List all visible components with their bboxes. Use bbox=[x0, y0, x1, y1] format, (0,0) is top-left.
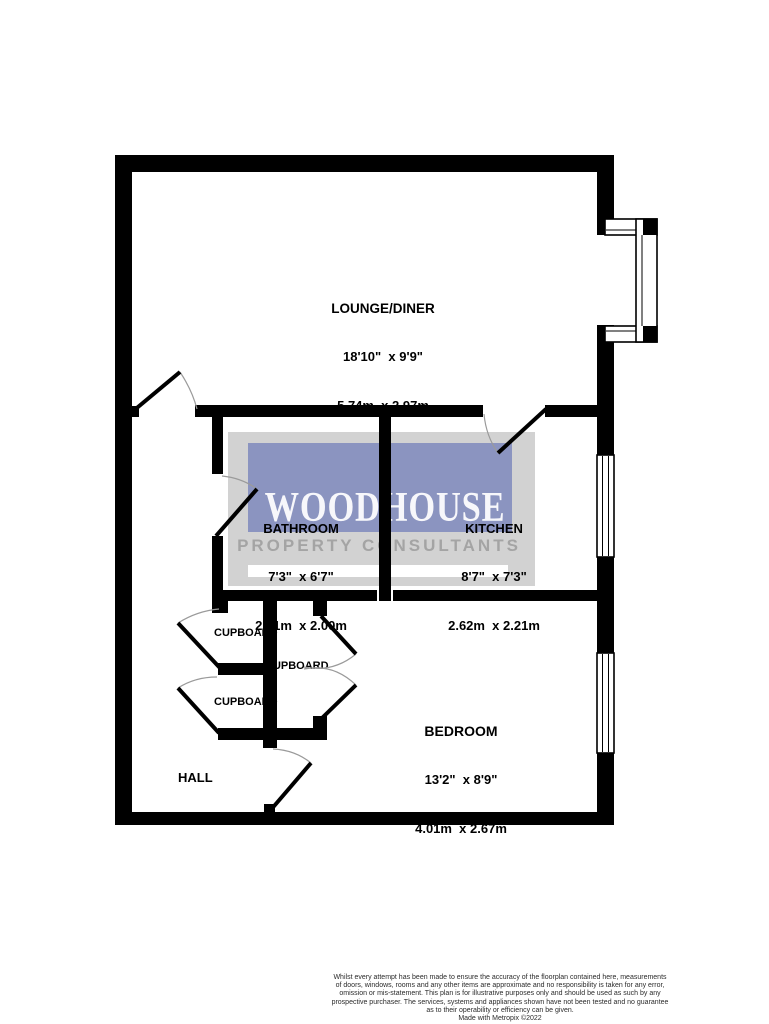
lounge-dim-imperial: 18'10" x 9'9" bbox=[331, 351, 435, 364]
bedroom-label: BEDROOM 13'2" x 8'9" 4.01m x 2.67m bbox=[415, 689, 507, 871]
disclaimer-line: prospective purchaser. The services, sys… bbox=[307, 999, 693, 1007]
cupboard-middle-label: CUPBOARD bbox=[265, 660, 329, 672]
lounge-label: LOUNGE/DINER 18'10" x 9'9" 5.74m x 2.97m bbox=[331, 266, 435, 448]
disclaimer: Whilst every attempt has been made to en… bbox=[307, 974, 693, 1023]
bedroom-dim-imperial: 13'2" x 8'9" bbox=[415, 774, 507, 787]
hall-label: HALL bbox=[178, 770, 213, 785]
bedroom-name: BEDROOM bbox=[415, 725, 507, 738]
disclaimer-made-with: Made with Metropix ©2022 bbox=[307, 1015, 693, 1023]
kitchen-label: KITCHEN 8'7" x 7'3" 2.62m x 2.21m bbox=[448, 486, 540, 668]
disclaimer-line: omission or mis-statement. This plan is … bbox=[307, 990, 693, 998]
room-labels: LOUNGE/DINER 18'10" x 9'9" 5.74m x 2.97m… bbox=[0, 0, 769, 1024]
bathroom-name: BATHROOM bbox=[255, 522, 347, 535]
floorplan-page: WOODHOUSE PROPERTY CONSULTANTS LOUNGE/DI… bbox=[0, 0, 769, 1024]
disclaimer-line: of doors, windows, rooms and any other i… bbox=[307, 982, 693, 990]
cupboard-bottom-label: CUPBOARD bbox=[214, 696, 278, 708]
kitchen-name: KITCHEN bbox=[448, 522, 540, 535]
bedroom-dim-metric: 4.01m x 2.67m bbox=[415, 823, 507, 836]
kitchen-dim-metric: 2.62m x 2.21m bbox=[448, 620, 540, 633]
bathroom-dim-imperial: 7'3" x 6'7" bbox=[255, 571, 347, 584]
lounge-dim-metric: 5.74m x 2.97m bbox=[331, 400, 435, 413]
disclaimer-line: as to their operability or efficiency ca… bbox=[307, 1007, 693, 1015]
kitchen-dim-imperial: 8'7" x 7'3" bbox=[448, 571, 540, 584]
disclaimer-line: Whilst every attempt has been made to en… bbox=[307, 974, 693, 982]
lounge-name: LOUNGE/DINER bbox=[331, 302, 435, 315]
cupboard-top-label: CUPBOARD bbox=[214, 627, 278, 639]
bathroom-label: BATHROOM 7'3" x 6'7" 2.21m x 2.00m bbox=[255, 486, 347, 668]
